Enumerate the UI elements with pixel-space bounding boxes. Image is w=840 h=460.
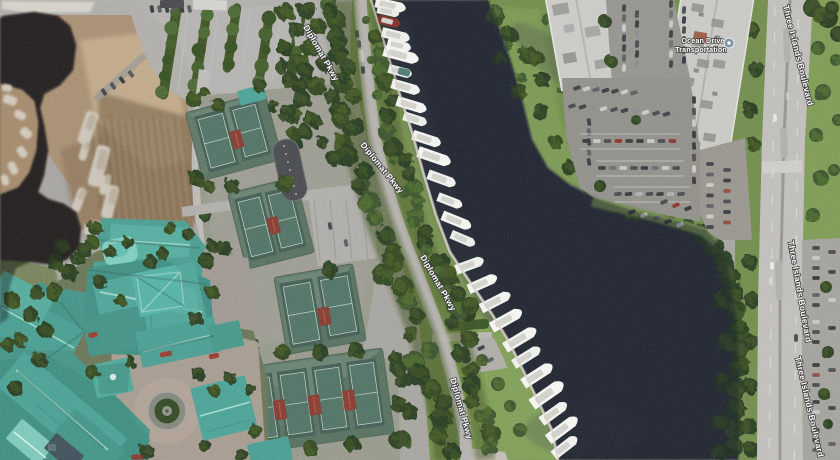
svg-text:Ocean Drive: Ocean Drive (681, 36, 724, 45)
svg-text:Transportation: Transportation (675, 45, 727, 54)
